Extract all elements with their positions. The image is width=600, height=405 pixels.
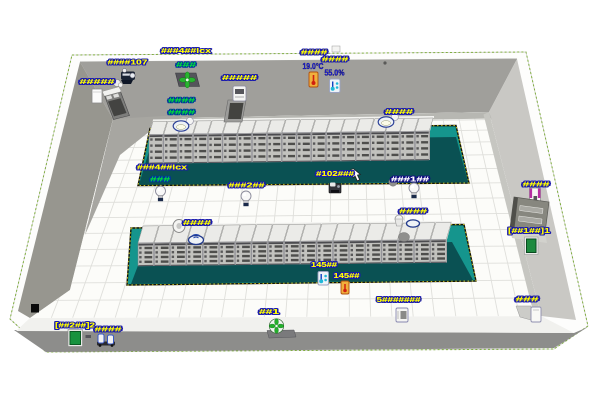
svg-text:####: #### [95,327,122,334]
svg-text:####: #### [168,110,195,117]
svg-text:###: ### [176,62,196,69]
svg-text:####: #### [301,50,328,57]
svg-text:###2##: ###2## [229,183,265,190]
svg-text:###: ### [516,297,539,304]
svg-text:[##1##]1: [##1##]1 [508,228,550,235]
svg-text:###4##Icx: ###4##Icx [161,48,211,55]
svg-text:145##: 145## [311,262,337,269]
svg-text:19.0°C: 19.0°C [303,62,324,71]
svg-text:####: #### [523,182,550,189]
svg-text:55.0%: 55.0% [325,69,345,78]
svg-text:#102###: #102### [316,171,354,178]
svg-text:#####: ##### [222,75,257,82]
svg-text:145##: 145## [334,273,360,280]
svg-text:5#######: 5####### [377,297,421,304]
svg-text:####: #### [183,220,211,227]
svg-text:####: #### [322,57,349,64]
svg-text:#####: ##### [80,79,115,86]
svg-text:##1: ##1 [259,309,279,316]
svg-text:####107: ####107 [108,60,148,67]
svg-text:###1##: ###1## [391,177,429,184]
svg-text:####: #### [168,98,195,105]
svg-text:####: #### [399,209,427,216]
svg-text:###4##Icx: ###4##Icx [137,165,187,172]
svg-text:[##2##]2: [##2##]2 [55,323,95,330]
svg-text:###: ### [150,177,170,184]
svg-text:####: #### [385,109,413,116]
